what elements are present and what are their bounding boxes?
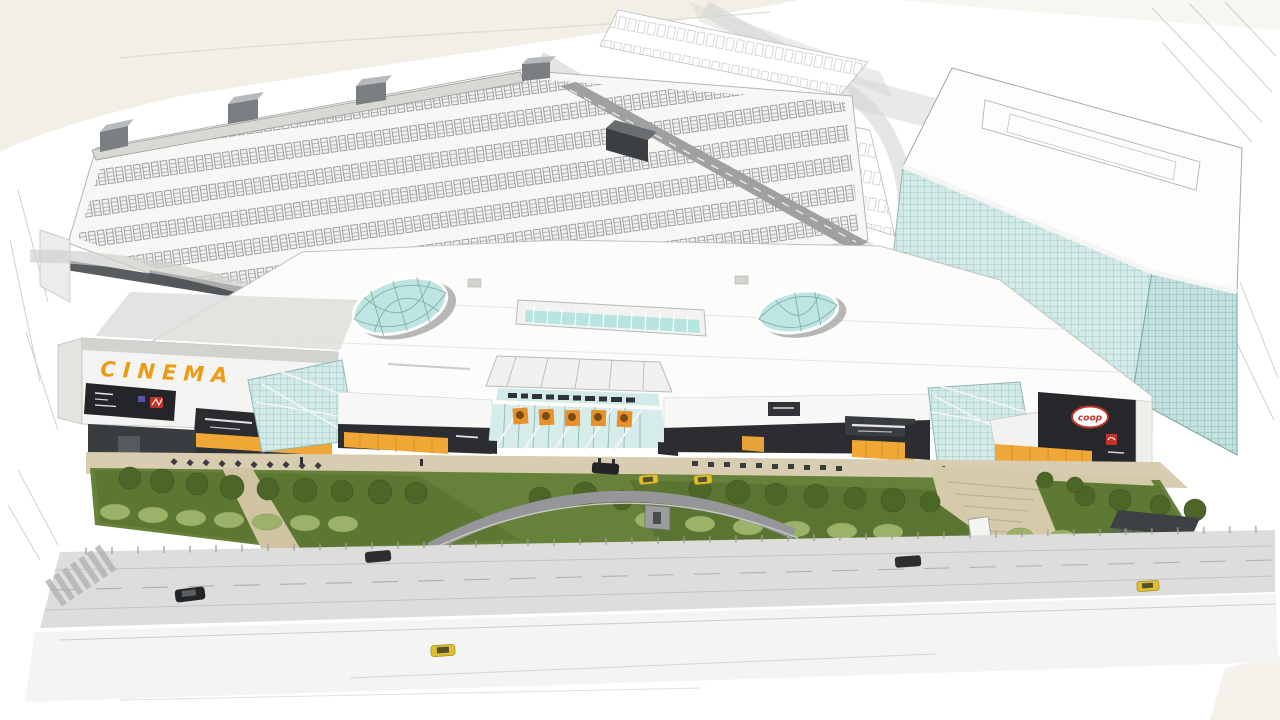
supermarket-logo-text: coop — [1078, 414, 1103, 424]
black-car — [895, 555, 922, 568]
taxi — [1137, 580, 1160, 592]
architectural-rendering: CINEMA — [0, 0, 1280, 720]
supermarket-logo: coop — [1072, 407, 1108, 428]
black-car — [592, 462, 620, 475]
small-red-logo — [1106, 434, 1117, 445]
rooftop-unit — [735, 276, 748, 284]
storefront-mid-west — [338, 392, 492, 454]
rendering-canvas: CINEMA — [0, 0, 1280, 720]
taxi — [694, 474, 713, 485]
red-logo — [150, 397, 163, 408]
storefront-mid-east — [664, 394, 930, 461]
black-car — [365, 550, 392, 563]
monument — [645, 505, 670, 530]
blue-logo — [138, 396, 145, 402]
taxi — [639, 474, 659, 485]
store-sign-east — [845, 416, 915, 437]
taxi — [431, 644, 456, 657]
rooftop-unit — [468, 279, 481, 287]
